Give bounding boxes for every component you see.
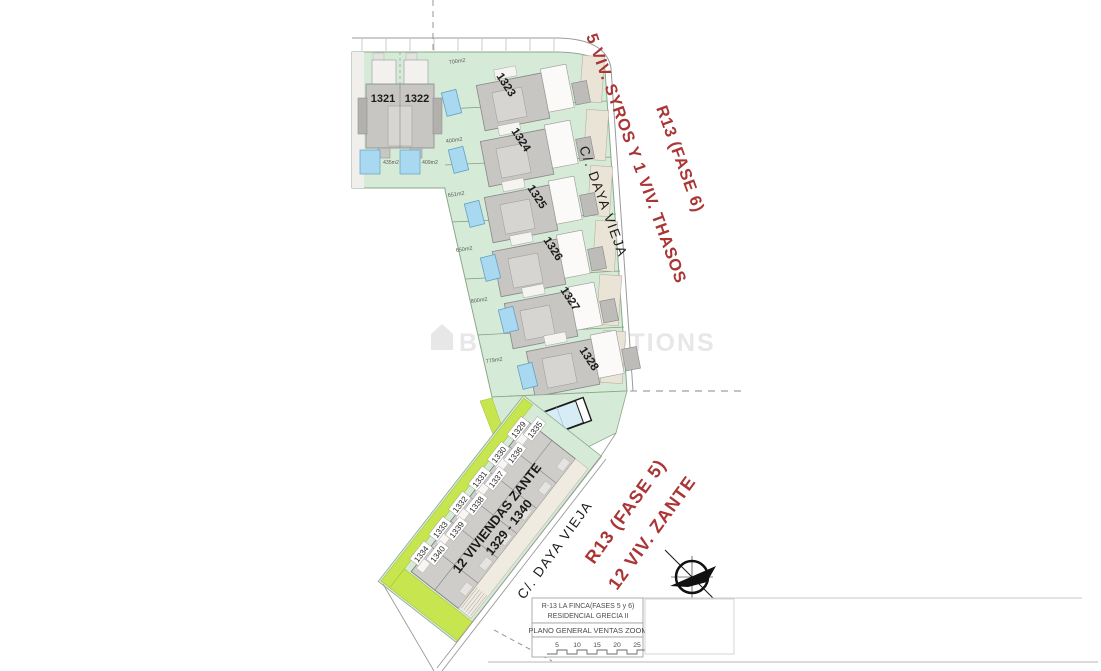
title-line3: PLANO GENERAL VENTAS ZOOM bbox=[528, 626, 647, 635]
pool bbox=[360, 150, 380, 174]
plot-number: 1321 bbox=[371, 93, 395, 105]
title-block: R-13 LA FINCA(FASES 5 y 6) RESIDENCIAL G… bbox=[488, 598, 1098, 662]
phase6-block: 1321 1322 435m2 409m2 bbox=[352, 38, 642, 397]
site-plan-page: B&L PROMOTIONS 1 bbox=[0, 0, 1101, 671]
empty-title-cell bbox=[645, 599, 734, 654]
scale-tick: 20 bbox=[613, 642, 621, 649]
duplex-terrace-right bbox=[404, 60, 428, 86]
duplex-terrace-left bbox=[372, 60, 396, 86]
scale-tick: 15 bbox=[593, 642, 601, 649]
scale-tick: 25 bbox=[633, 642, 641, 649]
duplex-wing-left bbox=[358, 98, 367, 134]
scale-tick: 5 bbox=[555, 642, 559, 649]
scale-tick: 10 bbox=[573, 642, 581, 649]
plot-number: 1322 bbox=[405, 93, 429, 105]
area-label: 409m2 bbox=[422, 160, 438, 166]
north-compass-icon bbox=[665, 550, 719, 604]
sidewalk-ticks bbox=[362, 39, 554, 51]
pool bbox=[400, 150, 420, 174]
area-label: 435m2 bbox=[383, 160, 399, 166]
watermark-house-icon bbox=[431, 324, 453, 350]
duplex-wing-right bbox=[433, 98, 442, 134]
title-line2: RESIDENCIAL GRECIA II bbox=[548, 613, 629, 620]
site-plan-svg: B&L PROMOTIONS 1 bbox=[0, 0, 1101, 671]
title-line1: R-13 LA FINCA(FASES 5 y 6) bbox=[542, 603, 635, 610]
